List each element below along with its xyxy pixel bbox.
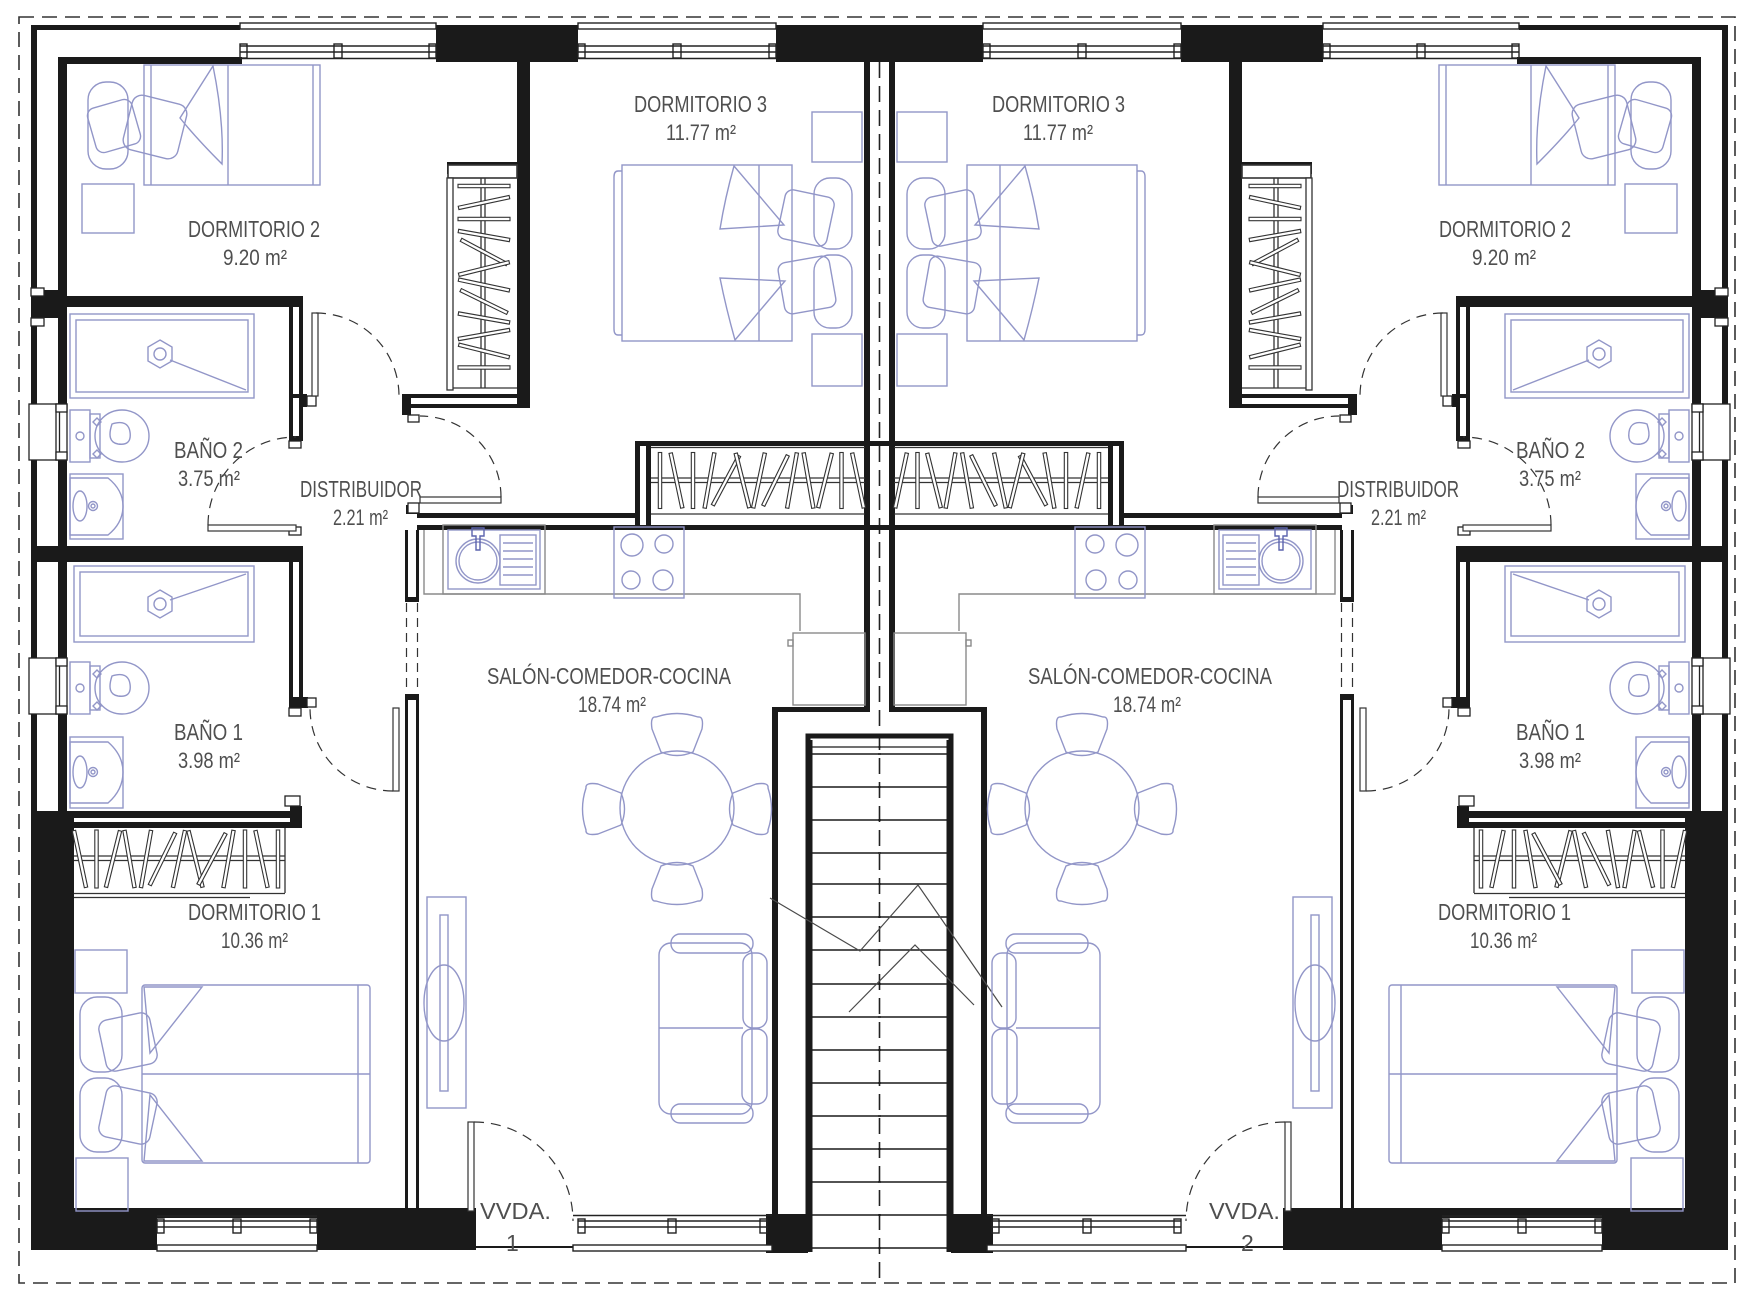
svg-text:DORMITORIO 1: DORMITORIO 1 xyxy=(1438,899,1571,925)
svg-text:DORMITORIO 2: DORMITORIO 2 xyxy=(188,216,320,242)
svg-text:DISTRIBUIDOR: DISTRIBUIDOR xyxy=(1337,476,1459,502)
svg-text:11.77 m²: 11.77 m² xyxy=(1023,120,1093,145)
svg-text:10.36 m²: 10.36 m² xyxy=(221,928,288,953)
svg-text:BAÑO 2: BAÑO 2 xyxy=(1516,437,1585,463)
svg-text:11.77 m²: 11.77 m² xyxy=(666,120,736,145)
svg-text:VVDA.: VVDA. xyxy=(1209,1198,1280,1224)
svg-text:3.75 m²: 3.75 m² xyxy=(178,466,240,491)
svg-text:BAÑO 2: BAÑO 2 xyxy=(174,437,243,463)
svg-text:SALÓN-COMEDOR-COCINA: SALÓN-COMEDOR-COCINA xyxy=(1028,663,1273,689)
svg-text:1: 1 xyxy=(506,1230,519,1256)
svg-text:DORMITORIO 1: DORMITORIO 1 xyxy=(188,899,321,925)
svg-text:DORMITORIO 3: DORMITORIO 3 xyxy=(634,91,767,117)
svg-text:9.20 m²: 9.20 m² xyxy=(1472,245,1536,270)
svg-text:SALÓN-COMEDOR-COCINA: SALÓN-COMEDOR-COCINA xyxy=(487,663,732,689)
svg-text:BAÑO 1: BAÑO 1 xyxy=(174,719,243,745)
svg-text:10.36 m²: 10.36 m² xyxy=(1470,928,1537,953)
svg-text:DORMITORIO 3: DORMITORIO 3 xyxy=(992,91,1125,117)
svg-text:3.75 m²: 3.75 m² xyxy=(1519,466,1581,491)
svg-text:VVDA.: VVDA. xyxy=(480,1198,551,1224)
svg-text:BAÑO 1: BAÑO 1 xyxy=(1516,719,1585,745)
svg-text:2: 2 xyxy=(1241,1230,1254,1256)
svg-text:2.21 m²: 2.21 m² xyxy=(1371,505,1426,530)
svg-text:18.74 m²: 18.74 m² xyxy=(578,692,646,717)
svg-text:9.20 m²: 9.20 m² xyxy=(223,245,287,270)
svg-text:2.21 m²: 2.21 m² xyxy=(333,505,388,530)
svg-text:DORMITORIO 2: DORMITORIO 2 xyxy=(1439,216,1571,242)
svg-text:3.98 m²: 3.98 m² xyxy=(1519,748,1581,773)
svg-text:3.98 m²: 3.98 m² xyxy=(178,748,240,773)
svg-text:18.74 m²: 18.74 m² xyxy=(1113,692,1181,717)
svg-text:DISTRIBUIDOR: DISTRIBUIDOR xyxy=(300,476,422,502)
